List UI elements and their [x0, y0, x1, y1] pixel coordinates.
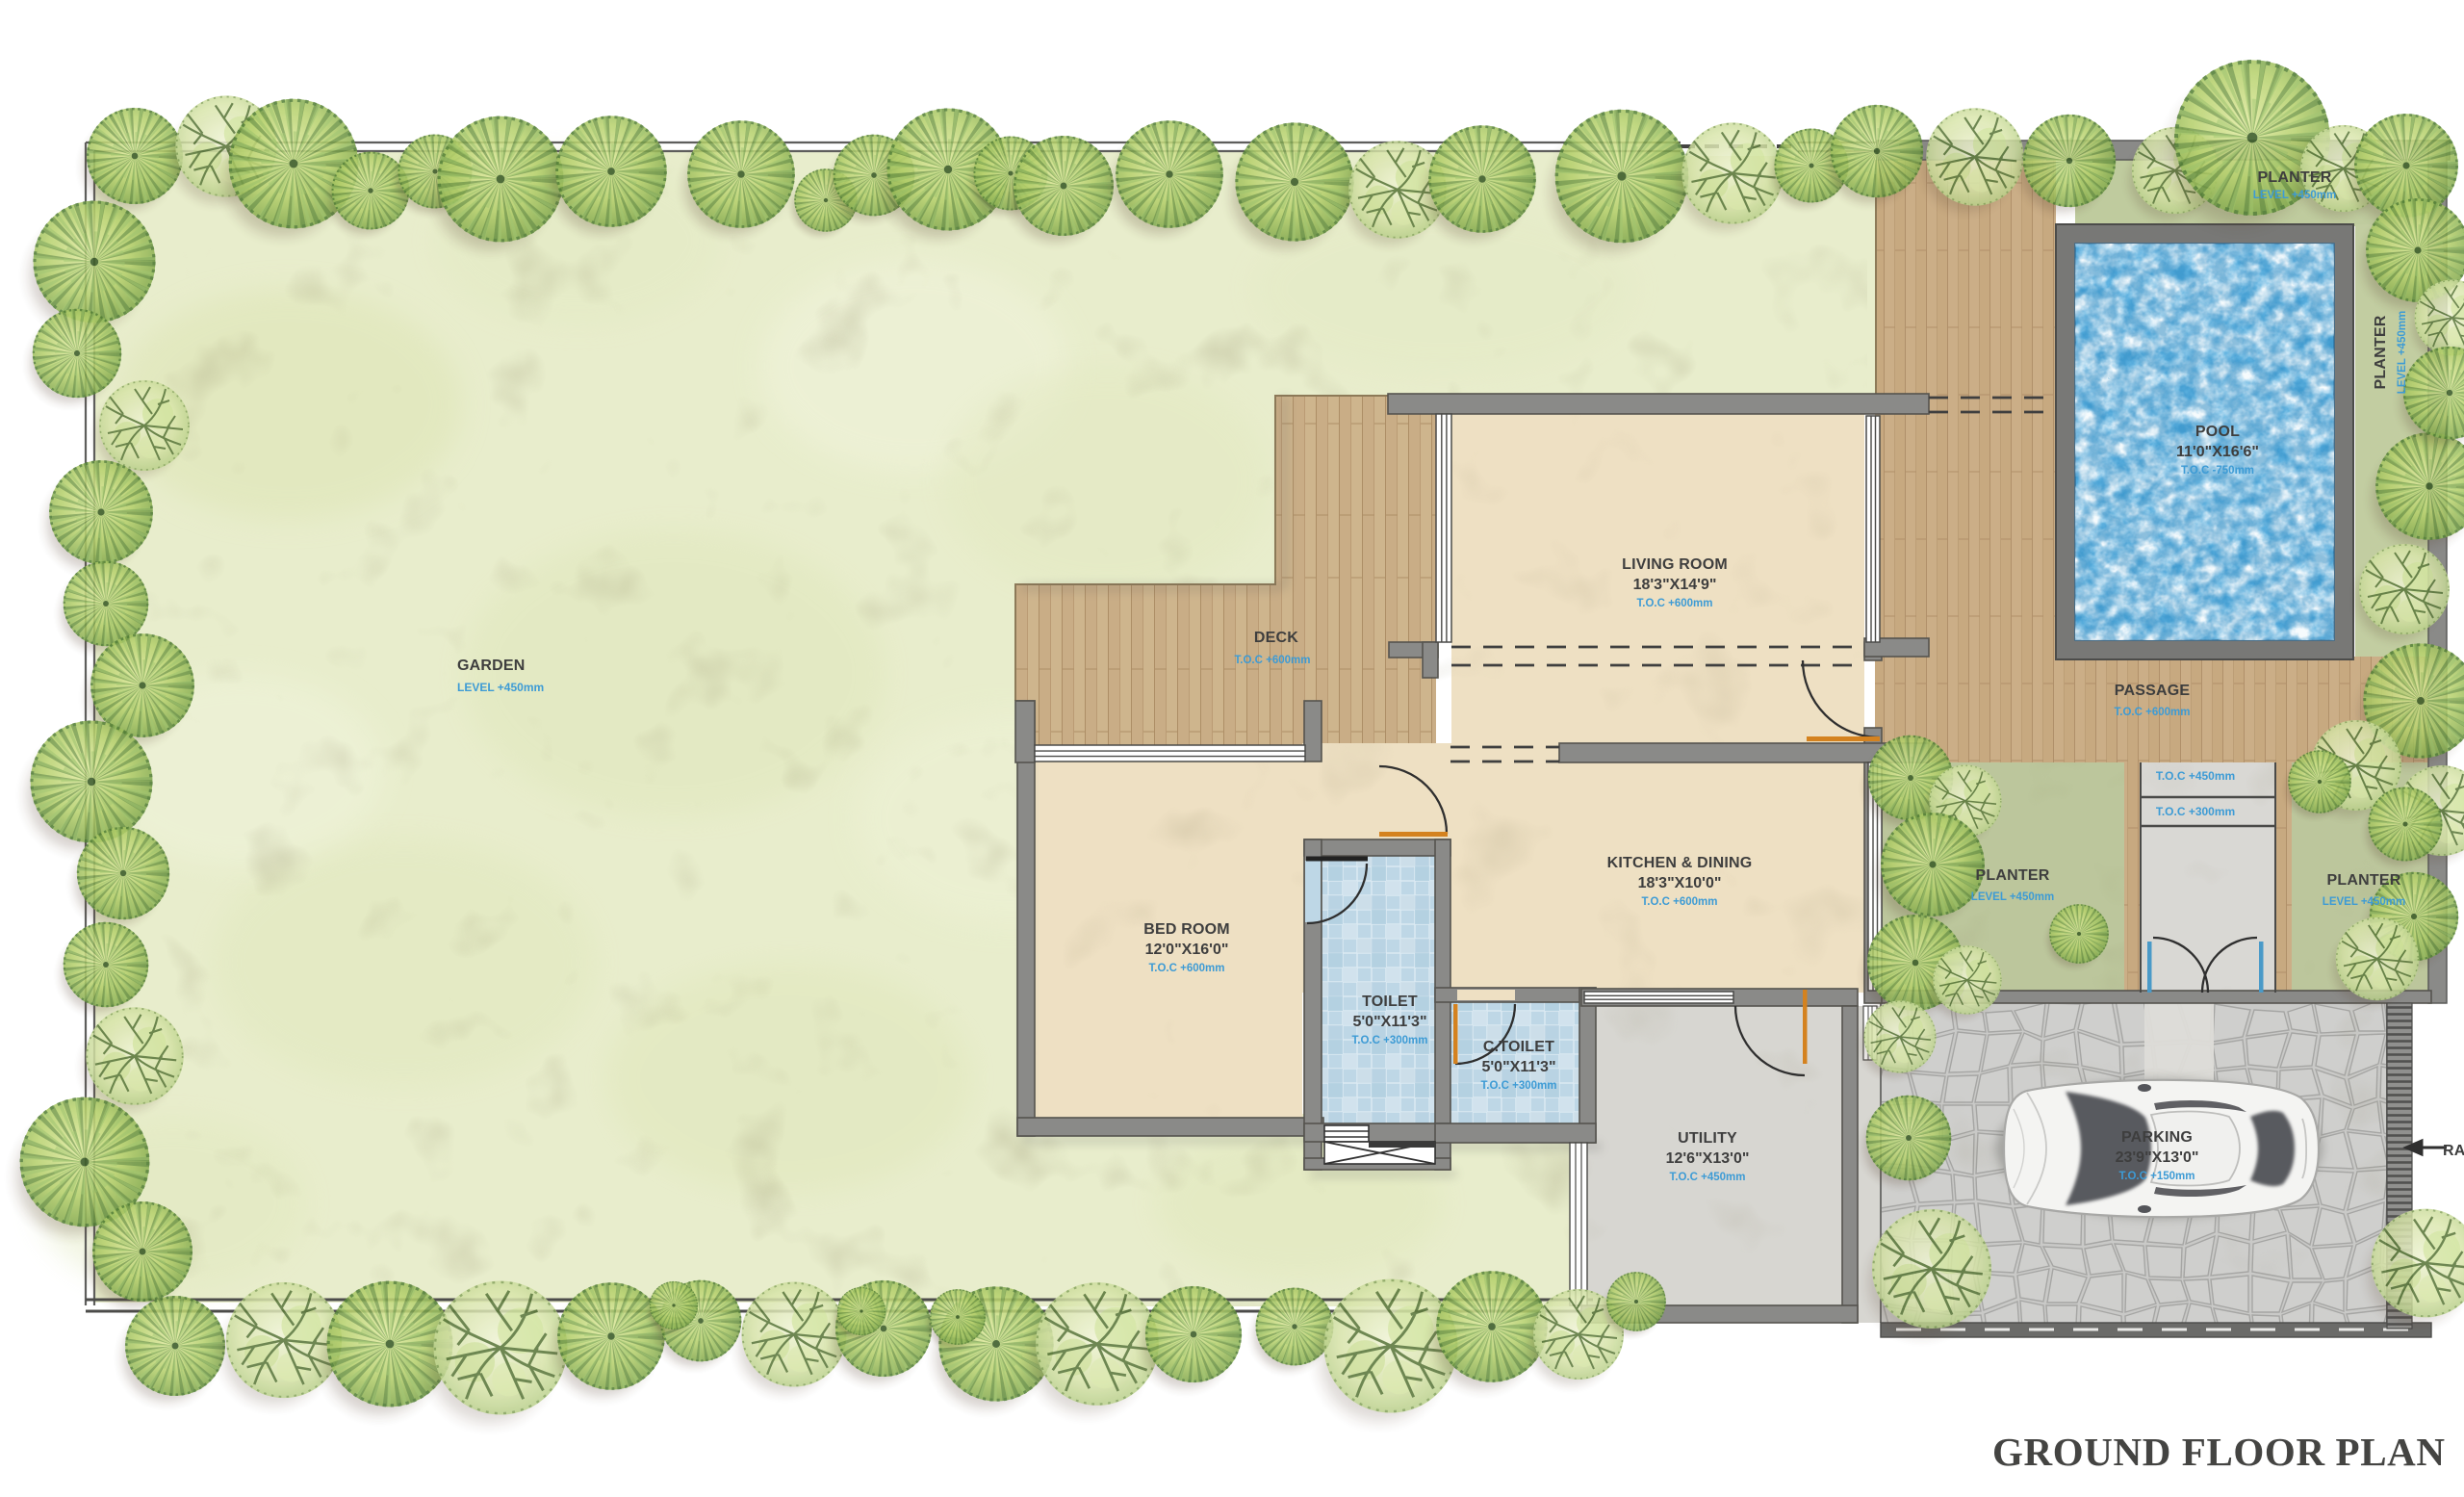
svg-text:T.O.C +600mm: T.O.C +600mm — [1637, 598, 1713, 609]
svg-text:18'3"X10'0": 18'3"X10'0" — [1638, 875, 1722, 891]
svg-text:LEVEL +450mm: LEVEL +450mm — [2397, 311, 2408, 394]
svg-text:LEVEL +450mm: LEVEL +450mm — [457, 681, 544, 694]
svg-text:LEVEL +450mm: LEVEL +450mm — [2323, 896, 2405, 908]
svg-text:T.O.C +300mm: T.O.C +300mm — [1352, 1035, 1428, 1046]
svg-text:KITCHEN & DINING: KITCHEN & DINING — [1607, 855, 1753, 871]
svg-text:18'3"X14'9": 18'3"X14'9" — [1633, 577, 1717, 593]
svg-text:RAMP: RAMP — [2443, 1143, 2464, 1159]
svg-text:5'0"X11'3": 5'0"X11'3" — [1352, 1014, 1426, 1030]
svg-text:T.O.C +150mm: T.O.C +150mm — [2119, 1171, 2195, 1182]
svg-text:T.O.C +450mm: T.O.C +450mm — [2156, 769, 2235, 783]
svg-text:BED ROOM: BED ROOM — [1143, 921, 1230, 938]
svg-text:LEVEL +450mm: LEVEL +450mm — [2253, 190, 2336, 201]
svg-text:T.O.C +300mm: T.O.C +300mm — [2156, 805, 2235, 818]
svg-text:LEVEL +450mm: LEVEL +450mm — [1971, 891, 2054, 903]
svg-text:5'0"X11'3": 5'0"X11'3" — [1481, 1059, 1555, 1075]
svg-text:PASSAGE: PASSAGE — [2115, 683, 2191, 699]
svg-text:PLANTER: PLANTER — [2327, 872, 2401, 889]
svg-text:LIVING ROOM: LIVING ROOM — [1622, 556, 1728, 573]
svg-text:T.O.C +300mm: T.O.C +300mm — [1481, 1080, 1557, 1092]
svg-text:PARKING: PARKING — [2121, 1129, 2193, 1146]
svg-text:T.O.C +450mm: T.O.C +450mm — [1670, 1172, 1746, 1183]
svg-text:UTILITY: UTILITY — [1678, 1130, 1737, 1147]
svg-text:C.TOILET: C.TOILET — [1483, 1039, 1554, 1055]
svg-text:12'6"X13'0": 12'6"X13'0" — [1666, 1150, 1750, 1167]
svg-text:PLANTER: PLANTER — [2258, 169, 2332, 186]
svg-text:DECK: DECK — [1254, 630, 1298, 646]
svg-text:T.O.C +600mm: T.O.C +600mm — [1235, 655, 1311, 666]
svg-text:POOL: POOL — [2195, 424, 2240, 440]
svg-text:GARDEN: GARDEN — [457, 658, 526, 674]
svg-text:T.O.C -750mm: T.O.C -750mm — [2181, 465, 2254, 477]
svg-text:T.O.C +600mm: T.O.C +600mm — [1642, 896, 1718, 908]
svg-text:12'0"X16'0": 12'0"X16'0" — [1145, 942, 1229, 958]
svg-text:PLANTER: PLANTER — [2373, 315, 2389, 389]
svg-text:T.O.C +600mm: T.O.C +600mm — [1149, 963, 1225, 974]
svg-text:PLANTER: PLANTER — [1976, 867, 2050, 884]
svg-text:GROUND FLOOR PLAN: GROUND FLOOR PLAN — [1992, 1430, 2445, 1474]
svg-text:TOILET: TOILET — [1362, 994, 1418, 1010]
svg-text:11'0"X16'6": 11'0"X16'6" — [2176, 444, 2259, 460]
svg-text:T.O.C +600mm: T.O.C +600mm — [2115, 707, 2191, 718]
svg-text:23'9"X13'0": 23'9"X13'0" — [2116, 1149, 2199, 1166]
